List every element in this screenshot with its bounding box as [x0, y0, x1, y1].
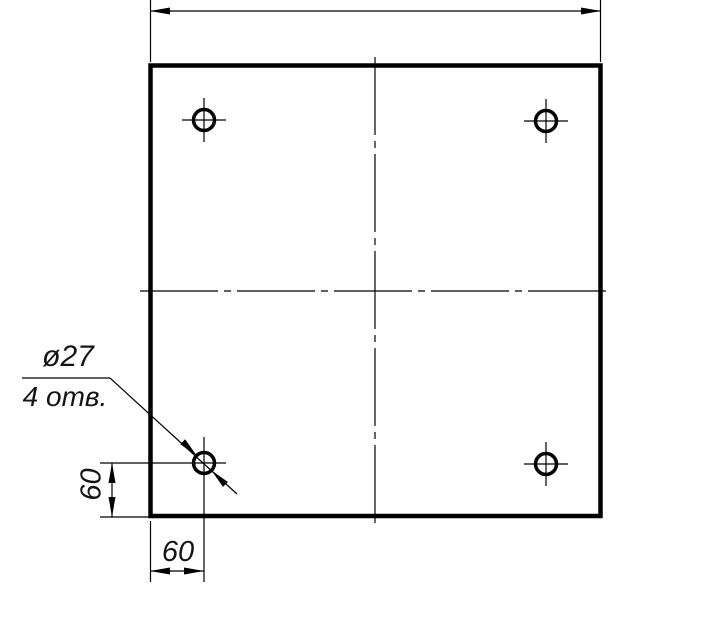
- leader-arrow-0: [180, 439, 197, 456]
- bottom-offset-label: 60: [156, 538, 200, 567]
- dim-bottom-60-arrow-1: [184, 568, 204, 575]
- dim-left-60-arrow-1: [109, 497, 116, 517]
- leader-arrow-1: [211, 470, 228, 487]
- hole-diameter-label: ø27: [26, 342, 110, 372]
- left-offset-label: 60: [78, 463, 107, 507]
- dim-left-60-arrow-0: [109, 463, 116, 483]
- drawing-svg: [0, 0, 713, 631]
- dim-top-width-arrow-0: [150, 8, 170, 15]
- dim-top-width-arrow-1: [581, 8, 601, 15]
- dim-bottom-60-arrow-0: [150, 568, 170, 575]
- technical-drawing: ø27 4 отв. 60 60: [0, 0, 713, 631]
- hole-count-label: 4 отв.: [10, 383, 120, 411]
